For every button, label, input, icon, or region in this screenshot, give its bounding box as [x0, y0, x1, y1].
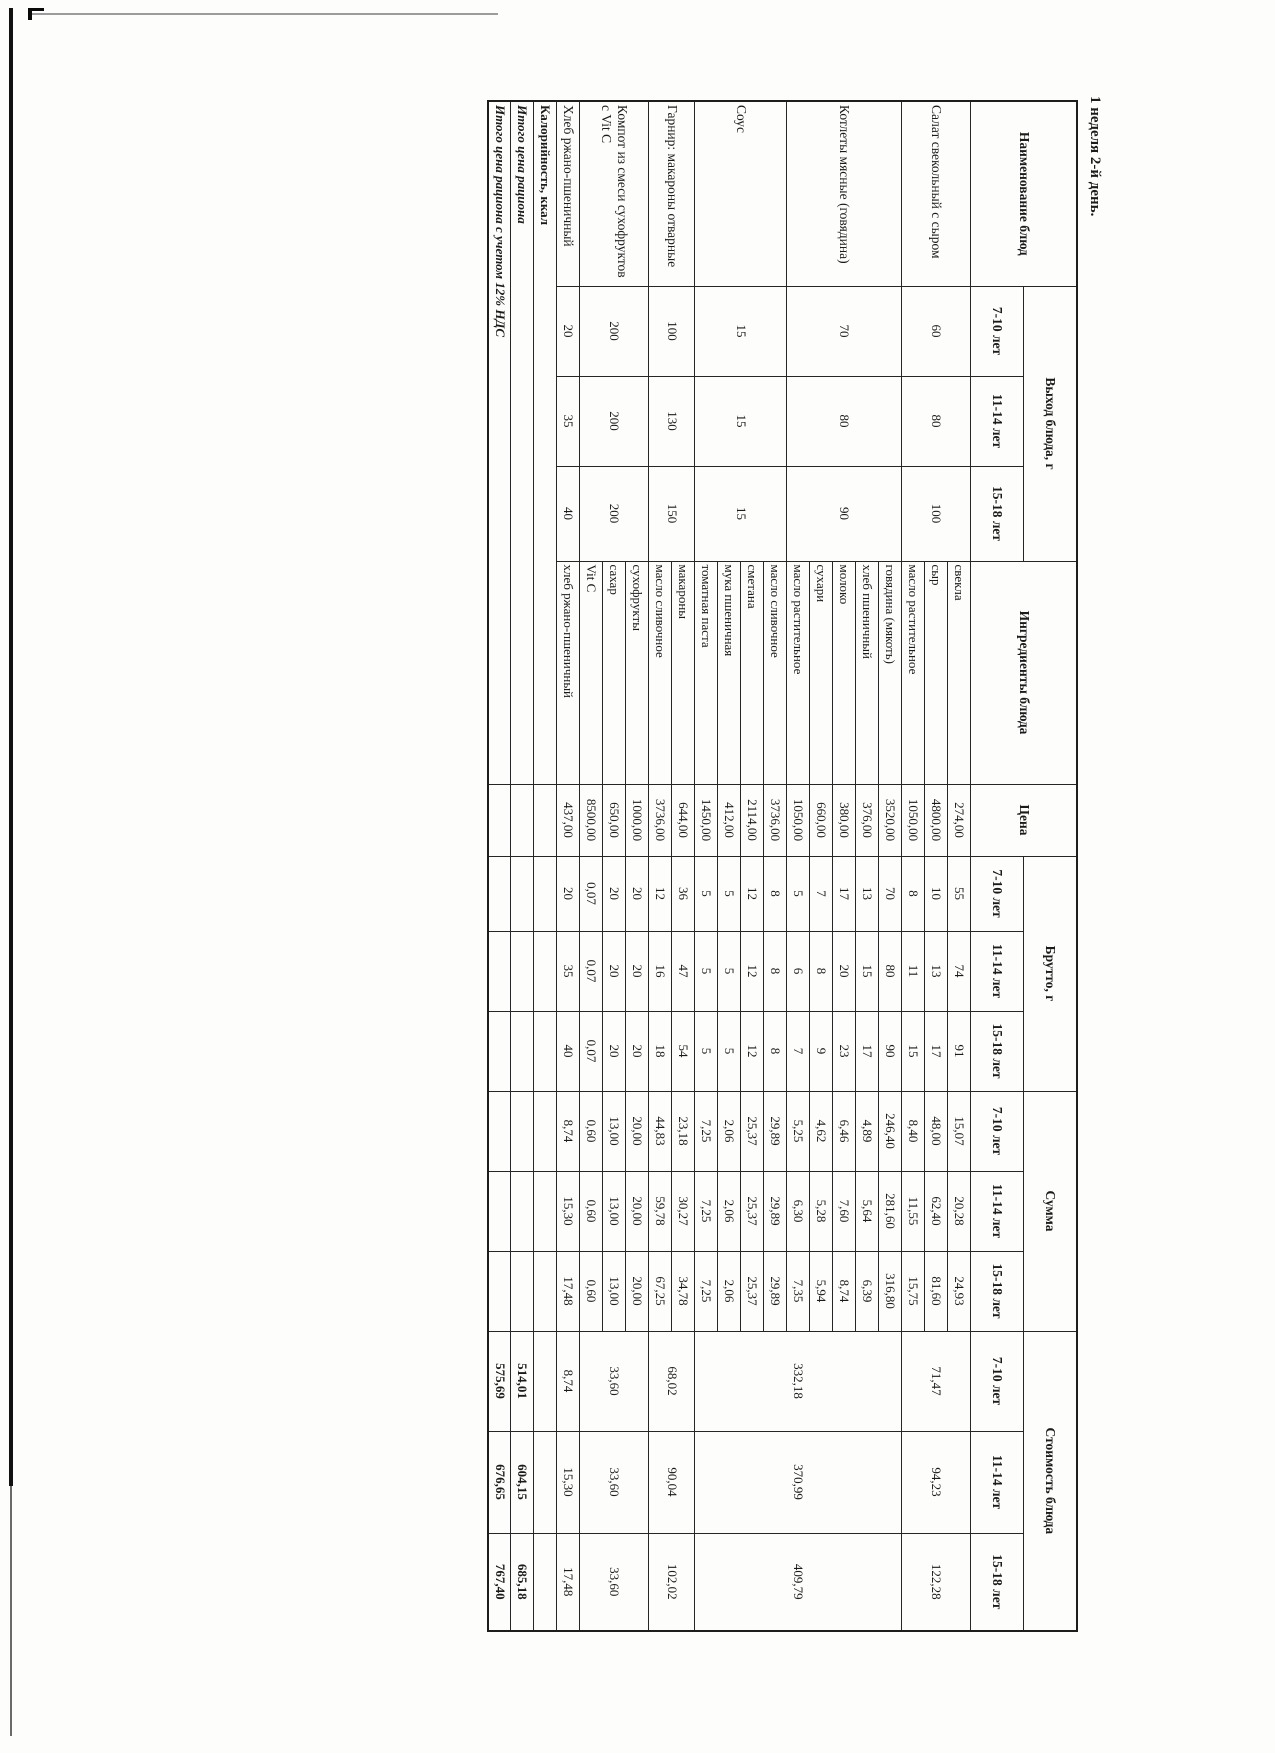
price-cell: 1000,00	[626, 784, 649, 856]
brutto-cell: 5	[718, 1011, 741, 1091]
ingredient-cell: сухари	[810, 561, 833, 784]
brutto-cell-empty	[511, 1011, 534, 1091]
ingredient-cell: масло растительное	[787, 561, 810, 784]
age-header-sum-3: 15-18 лет	[971, 1251, 1024, 1331]
brutto-cell-empty	[488, 856, 511, 931]
table-header: Наименование блюд Выход блюда, г Ингреди…	[971, 101, 1077, 1631]
brutto-cell: 15	[856, 931, 879, 1011]
price-cell-empty	[534, 784, 557, 856]
age-header-sum-2: 11-14 лет	[971, 1171, 1024, 1251]
header-age-row: 7-10 лет 11-14 лет 15-18 лет 7-10 лет 11…	[971, 101, 1024, 1631]
price-cell: 3520,00	[879, 784, 902, 856]
brutto-cell: 35	[557, 931, 580, 1011]
header-group-row: Наименование блюд Выход блюда, г Ингреди…	[1024, 101, 1077, 1631]
price-cell-empty	[511, 784, 534, 856]
price-cell: 650,00	[603, 784, 626, 856]
sum-cell: 20,00	[626, 1091, 649, 1171]
sum-cell: 15,75	[902, 1251, 925, 1331]
sum-cell: 281,60	[879, 1171, 902, 1251]
sum-cell: 24,93	[948, 1251, 971, 1331]
ingredient-row: Котлеты мясные (говядина)708090говядина …	[879, 101, 902, 1631]
sum-cell: 30,27	[672, 1171, 695, 1251]
ingredient-cell: сметана	[741, 561, 764, 784]
sum-group-header: Сумма	[1024, 1091, 1077, 1331]
age-header-cost-3: 15-18 лет	[971, 1533, 1024, 1631]
brutto-cell: 8	[764, 931, 787, 1011]
sum-cell: 23,18	[672, 1091, 695, 1171]
dish-name-cell: Хлеб ржано-пшеничный	[557, 101, 580, 286]
sum-cell: 0,60	[580, 1091, 603, 1171]
sum-cell: 29,89	[764, 1091, 787, 1171]
price-cell: 437,00	[557, 784, 580, 856]
age-header-sum-1: 7-10 лет	[971, 1091, 1024, 1171]
output-cell: 15	[695, 286, 787, 376]
output-cell: 80	[787, 376, 902, 466]
ingredient-row: Салат свекольный с сыром6080100свекла274…	[948, 101, 971, 1631]
sum-cell: 62,40	[925, 1171, 948, 1251]
brutto-cell: 70	[879, 856, 902, 931]
ingredient-row: Гарнир: макароны отварные100130150макаро…	[672, 101, 695, 1631]
cost-cell: 15,30	[557, 1431, 580, 1533]
ingredient-cell: свекла	[948, 561, 971, 784]
cost-cell: 102,02	[649, 1533, 695, 1631]
brutto-cell: 0,07	[580, 1011, 603, 1091]
cost-cell: 71,47	[902, 1331, 971, 1431]
output-cell: 40	[557, 466, 580, 561]
ingredient-row: Хлеб ржано-пшеничный203540хлеб ржано-пше…	[557, 101, 580, 1631]
sum-cell: 2,06	[718, 1171, 741, 1251]
cost-group-header: Стоимость блюда	[1024, 1331, 1077, 1631]
sum-cell: 6,46	[833, 1091, 856, 1171]
cost-cell: 33,60	[580, 1533, 649, 1631]
output-cell: 100	[902, 466, 971, 561]
price-cell: 1450,00	[695, 784, 718, 856]
sum-cell: 20,28	[948, 1171, 971, 1251]
sum-cell: 8,40	[902, 1091, 925, 1171]
brutto-cell: 17	[856, 1011, 879, 1091]
sum-cell: 11,55	[902, 1171, 925, 1251]
sum-cell: 17,48	[557, 1251, 580, 1331]
sum-cell-empty	[488, 1251, 511, 1331]
sum-cell: 2,06	[718, 1091, 741, 1171]
cost-cell-empty	[534, 1331, 557, 1431]
cost-cell: 122,28	[902, 1533, 971, 1631]
price-cell: 8500,00	[580, 784, 603, 856]
ingredient-cell: молоко	[833, 561, 856, 784]
brutto-cell: 91	[948, 1011, 971, 1091]
brutto-cell: 12	[649, 856, 672, 931]
ingredient-row: Компот из смеси сухофруктов с Vit C20020…	[626, 101, 649, 1631]
brutto-cell: 15	[902, 1011, 925, 1091]
sum-cell-empty	[511, 1251, 534, 1331]
sum-cell: 6,30	[787, 1171, 810, 1251]
brutto-cell: 40	[557, 1011, 580, 1091]
sum-cell: 7,35	[787, 1251, 810, 1331]
brutto-cell: 11	[902, 931, 925, 1011]
cost-cell: 33,60	[580, 1431, 649, 1533]
brutto-cell-empty	[511, 856, 534, 931]
sum-cell: 20,00	[626, 1251, 649, 1331]
sum-cell: 67,25	[649, 1251, 672, 1331]
price-cell: 380,00	[833, 784, 856, 856]
brutto-cell-empty	[488, 931, 511, 1011]
sum-cell: 20,00	[626, 1171, 649, 1251]
brutto-cell: 20	[603, 1011, 626, 1091]
sum-cell: 8,74	[833, 1251, 856, 1331]
brutto-cell: 47	[672, 931, 695, 1011]
price-cell: 3736,00	[649, 784, 672, 856]
brutto-cell: 0,07	[580, 856, 603, 931]
cost-cell-empty	[534, 1533, 557, 1631]
brutto-cell: 5	[787, 856, 810, 931]
dish-name-cell: Салат свекольный с сыром	[902, 101, 971, 286]
ingredient-cell: говядина (мякоть)	[879, 561, 902, 784]
age-header-cost-2: 11-14 лет	[971, 1431, 1024, 1533]
scan-edge-artifact-faint	[10, 1486, 12, 1736]
output-group-header: Выход блюда, г	[1024, 286, 1077, 561]
sum-cell: 15,30	[557, 1171, 580, 1251]
brutto-cell-empty	[534, 1011, 557, 1091]
brutto-cell: 12	[741, 931, 764, 1011]
brutto-cell-empty	[488, 1011, 511, 1091]
total-row: Итого цена рациона514,01604,15685,18	[511, 101, 534, 1631]
output-cell: 100	[649, 286, 695, 376]
brutto-cell: 20	[833, 931, 856, 1011]
brutto-cell: 13	[856, 856, 879, 931]
page-title: 1 неделя 2-й день.	[1086, 96, 1103, 396]
sum-cell-empty	[534, 1091, 557, 1171]
brutto-cell: 80	[879, 931, 902, 1011]
sum-cell: 25,37	[741, 1251, 764, 1331]
brutto-cell: 20	[626, 856, 649, 931]
price-cell: 376,00	[856, 784, 879, 856]
age-header-output-1: 7-10 лет	[971, 286, 1024, 376]
age-header-output-2: 11-14 лет	[971, 376, 1024, 466]
ingredient-cell: сухофрукты	[626, 561, 649, 784]
ingredient-cell: мука пшеничная	[718, 561, 741, 784]
brutto-cell: 55	[948, 856, 971, 931]
ingredient-cell: томатная паста	[695, 561, 718, 784]
brutto-cell: 54	[672, 1011, 695, 1091]
dish-name-cell: Котлеты мясные (говядина)	[787, 101, 902, 286]
sum-cell: 25,37	[741, 1091, 764, 1171]
sum-cell: 7,25	[695, 1171, 718, 1251]
brutto-cell: 8	[902, 856, 925, 931]
cost-cell: 409,79	[695, 1533, 902, 1631]
age-header-output-3: 15-18 лет	[971, 466, 1024, 561]
brutto-cell: 17	[925, 1011, 948, 1091]
dish-name-cell: Гарнир: макароны отварные	[649, 101, 695, 286]
total-value-cell: 575,69	[488, 1331, 511, 1431]
sum-cell-empty	[488, 1091, 511, 1171]
brutto-cell: 17	[833, 856, 856, 931]
sum-cell-empty	[511, 1171, 534, 1251]
total-vat-row: Итого цена рациона с учетом 12% НДС575,6…	[488, 101, 511, 1631]
sum-cell: 6,39	[856, 1251, 879, 1331]
scan-corner-artifact	[28, 8, 44, 20]
scan-top-line-artifact	[30, 13, 498, 15]
sum-cell: 5,28	[810, 1171, 833, 1251]
ingredients-header: Ингредиенты блюда	[971, 561, 1077, 784]
brutto-cell: 90	[879, 1011, 902, 1091]
brutto-cell: 36	[672, 856, 695, 931]
sum-cell: 25,37	[741, 1171, 764, 1251]
brutto-cell: 12	[741, 856, 764, 931]
sum-cell: 5,25	[787, 1091, 810, 1171]
ingredient-cell: масло сливочное	[649, 561, 672, 784]
sum-cell-empty	[534, 1171, 557, 1251]
brutto-cell-empty	[534, 931, 557, 1011]
sum-cell: 13,00	[603, 1091, 626, 1171]
brutto-cell: 7	[810, 856, 833, 931]
brutto-cell: 5	[695, 1011, 718, 1091]
total-value-cell: 767,40	[488, 1533, 511, 1631]
output-cell: 200	[580, 376, 649, 466]
brutto-cell: 8	[810, 931, 833, 1011]
ingredient-cell: Vit C	[580, 561, 603, 784]
sum-cell: 5,64	[856, 1171, 879, 1251]
sum-cell: 29,89	[764, 1171, 787, 1251]
output-cell: 35	[557, 376, 580, 466]
sum-cell: 48,00	[925, 1091, 948, 1171]
brutto-cell: 13	[925, 931, 948, 1011]
output-cell: 130	[649, 376, 695, 466]
dish-name-header: Наименование блюд	[971, 101, 1077, 286]
price-cell: 412,00	[718, 784, 741, 856]
sum-cell: 316,80	[879, 1251, 902, 1331]
brutto-cell: 5	[695, 856, 718, 931]
age-header-brutto-1: 7-10 лет	[971, 856, 1024, 931]
output-cell: 20	[557, 286, 580, 376]
brutto-cell: 6	[787, 931, 810, 1011]
sum-cell: 34,78	[672, 1251, 695, 1331]
output-cell: 80	[902, 376, 971, 466]
price-cell: 660,00	[810, 784, 833, 856]
output-cell: 70	[787, 286, 902, 376]
sum-cell-empty	[534, 1251, 557, 1331]
brutto-cell: 9	[810, 1011, 833, 1091]
cost-cell: 17,48	[557, 1533, 580, 1631]
brutto-cell: 0,07	[580, 931, 603, 1011]
cost-cell: 332,18	[695, 1331, 902, 1431]
brutto-cell: 8	[764, 1011, 787, 1091]
sum-cell: 0,60	[580, 1251, 603, 1331]
output-cell: 150	[649, 466, 695, 561]
output-cell: 200	[580, 286, 649, 376]
output-cell: 15	[695, 376, 787, 466]
brutto-cell: 7	[787, 1011, 810, 1091]
sum-cell: 81,60	[925, 1251, 948, 1331]
brutto-cell: 18	[649, 1011, 672, 1091]
sum-cell: 59,78	[649, 1171, 672, 1251]
price-cell: 2114,00	[741, 784, 764, 856]
sum-cell: 4,62	[810, 1091, 833, 1171]
brutto-cell: 20	[603, 931, 626, 1011]
age-header-brutto-2: 11-14 лет	[971, 931, 1024, 1011]
total-vat-row-label: Итого цена рациона с учетом 12% НДС	[488, 101, 511, 784]
price-cell: 274,00	[948, 784, 971, 856]
sum-cell: 2,06	[718, 1251, 741, 1331]
ingredient-cell: макароны	[672, 561, 695, 784]
output-cell: 200	[580, 466, 649, 561]
brutto-cell: 20	[557, 856, 580, 931]
price-cell: 4800,00	[925, 784, 948, 856]
cost-cell: 8,74	[557, 1331, 580, 1431]
total-value-cell: 685,18	[511, 1533, 534, 1631]
ingredient-cell: масло растительное	[902, 561, 925, 784]
brutto-cell: 20	[603, 856, 626, 931]
ingredient-cell: масло сливочное	[764, 561, 787, 784]
menu-table-container: Наименование блюд Выход блюда, г Ингреди…	[487, 100, 1078, 1630]
sum-cell: 29,89	[764, 1251, 787, 1331]
total-value-cell: 676,65	[488, 1431, 511, 1533]
total-value-cell: 604,15	[511, 1431, 534, 1533]
sum-cell: 7,60	[833, 1171, 856, 1251]
cost-cell: 90,04	[649, 1431, 695, 1533]
sum-cell: 8,74	[557, 1091, 580, 1171]
price-header: Цена	[971, 784, 1077, 856]
kcal-row: Калорийность, ккал	[534, 101, 557, 1631]
output-cell: 60	[902, 286, 971, 376]
age-header-brutto-3: 15-18 лет	[971, 1011, 1024, 1091]
scanned-page: 1 неделя 2-й день. Наименование блюд Вых…	[0, 0, 1275, 1753]
brutto-cell-empty	[534, 856, 557, 931]
brutto-cell: 74	[948, 931, 971, 1011]
total-value-cell: 514,01	[511, 1331, 534, 1431]
sum-cell: 15,07	[948, 1091, 971, 1171]
price-cell-empty	[488, 784, 511, 856]
brutto-group-header: Брутто, г	[1024, 856, 1077, 1091]
brutto-cell: 5	[718, 931, 741, 1011]
dish-name-cell: Компот из смеси сухофруктов с Vit C	[580, 101, 649, 286]
cost-cell-empty	[534, 1431, 557, 1533]
dish-name-cell: Соус	[695, 101, 787, 286]
price-cell: 1050,00	[902, 784, 925, 856]
sum-cell: 7,25	[695, 1251, 718, 1331]
ingredient-cell: сахар	[603, 561, 626, 784]
sum-cell: 13,00	[603, 1251, 626, 1331]
total-row-label: Итого цена рациона	[511, 101, 534, 784]
brutto-cell: 12	[741, 1011, 764, 1091]
price-cell: 3736,00	[764, 784, 787, 856]
price-cell: 1050,00	[787, 784, 810, 856]
brutto-cell: 8	[764, 856, 787, 931]
sum-cell: 4,89	[856, 1091, 879, 1171]
cost-cell: 33,60	[580, 1331, 649, 1431]
brutto-cell: 16	[649, 931, 672, 1011]
ingredient-cell: хлеб ржано-пшеничный	[557, 561, 580, 784]
brutto-cell-empty	[511, 931, 534, 1011]
sum-cell-empty	[511, 1091, 534, 1171]
menu-table: Наименование блюд Выход блюда, г Ингреди…	[487, 100, 1078, 1632]
brutto-cell: 5	[695, 931, 718, 1011]
ingredient-cell: хлеб пшеничный	[856, 561, 879, 784]
sum-cell: 44,83	[649, 1091, 672, 1171]
brutto-cell: 20	[626, 1011, 649, 1091]
scan-edge-artifact	[9, 8, 13, 1486]
output-cell: 15	[695, 466, 787, 561]
sum-cell: 7,25	[695, 1091, 718, 1171]
sum-cell: 0,60	[580, 1171, 603, 1251]
cost-cell: 68,02	[649, 1331, 695, 1431]
ingredient-cell: сыр	[925, 561, 948, 784]
age-header-cost-1: 7-10 лет	[971, 1331, 1024, 1431]
brutto-cell: 23	[833, 1011, 856, 1091]
sum-cell: 5,94	[810, 1251, 833, 1331]
sum-cell: 246,40	[879, 1091, 902, 1171]
cost-cell: 370,99	[695, 1431, 902, 1533]
brutto-cell: 10	[925, 856, 948, 931]
price-cell: 644,00	[672, 784, 695, 856]
kcal-row-label: Калорийность, ккал	[534, 101, 557, 784]
table-body: Салат свекольный с сыром6080100свекла274…	[488, 101, 971, 1631]
sum-cell-empty	[488, 1171, 511, 1251]
output-cell: 90	[787, 466, 902, 561]
sum-cell: 13,00	[603, 1171, 626, 1251]
brutto-cell: 20	[626, 931, 649, 1011]
cost-cell: 94,23	[902, 1431, 971, 1533]
brutto-cell: 5	[718, 856, 741, 931]
